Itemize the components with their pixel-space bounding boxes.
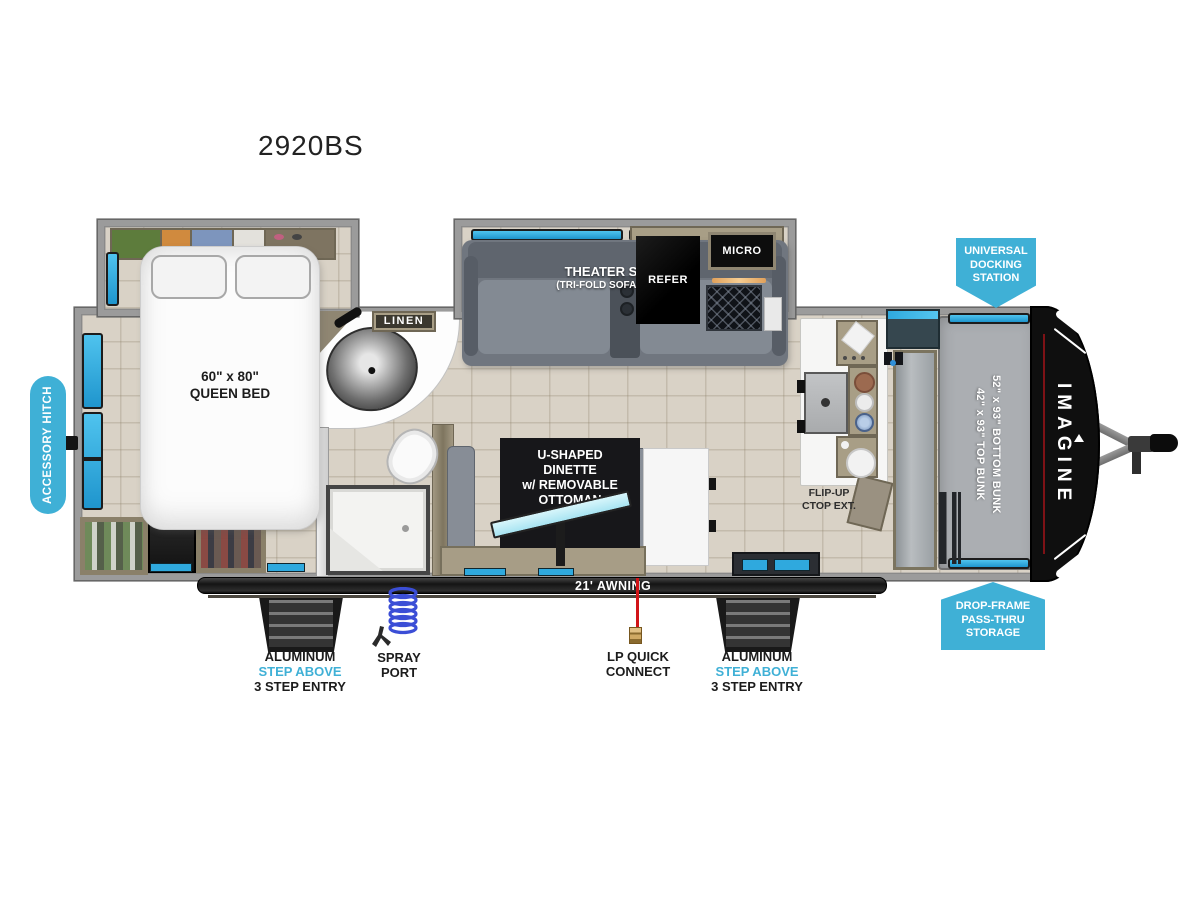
- step-label-line3: 3 STEP ENTRY: [697, 679, 817, 694]
- dinette-table-white: [643, 448, 709, 566]
- plate-white-icon: [855, 393, 874, 412]
- step-label-line1: ALUMINUM: [240, 649, 360, 664]
- linen-cabinet: LINEN: [372, 311, 436, 332]
- brand-label: IMAGINE: [1052, 330, 1074, 560]
- water-heater: [886, 309, 940, 349]
- bunk-window: [948, 313, 1030, 324]
- bed-size-label: 60" x 80": [141, 369, 319, 384]
- refrigerator: REFER: [636, 236, 700, 324]
- step-label-line3: 3 STEP ENTRY: [240, 679, 360, 694]
- wardrobe-left: [80, 517, 148, 575]
- docking-label-line2: DOCKING: [956, 259, 1036, 273]
- small-dish-icon: [841, 441, 849, 449]
- bowl-blue-icon: [855, 413, 874, 432]
- accessory-hitch-label: ACCESSORY HITCH: [30, 376, 66, 514]
- bottom-bunk-label: 52" x 93" BOTTOM BUNK: [988, 324, 1004, 564]
- storage-label-line3: STORAGE: [941, 627, 1045, 641]
- knob-icon: [843, 356, 847, 360]
- step-label-line2: STEP ABOVE: [697, 664, 817, 679]
- entry-steps-right: [711, 595, 805, 652]
- cap-red-accent: [1043, 334, 1045, 554]
- bedroom-window: [82, 412, 103, 510]
- docking-label-line3: STATION: [956, 272, 1036, 286]
- top-bunk-label: 42" x 93" TOP BUNK: [972, 324, 988, 564]
- spray-nozzle-icon: [372, 626, 394, 650]
- awning-bar: [197, 577, 887, 594]
- shower: [326, 485, 430, 575]
- storage-label-line1: DROP-FRAME: [941, 600, 1045, 614]
- storage-label-line2: PASS-THRU: [941, 614, 1045, 628]
- floor-mat: [464, 568, 506, 576]
- dinette-label-line1: U-SHAPED: [500, 448, 640, 463]
- pass-thru-storage-badge: DROP-FRAME PASS-THRU STORAGE: [941, 582, 1045, 650]
- faucet-blue-dot: [890, 360, 896, 366]
- griddle-knob-icon: [821, 398, 830, 407]
- table-hinge: [709, 478, 716, 490]
- flip-up-label-line2: CTOP EXT.: [792, 501, 866, 513]
- docking-station-badge: UNIVERSAL DOCKING STATION: [956, 238, 1036, 308]
- cabinet-handle: [797, 420, 805, 433]
- table-hinge: [709, 520, 716, 532]
- awning-label: 21' AWNING: [575, 579, 651, 593]
- window-divider: [84, 457, 101, 461]
- spray-port-label-line2: PORT: [366, 666, 432, 681]
- dinette-label-line2: DINETTE: [500, 463, 640, 478]
- cabinet-handle: [797, 380, 805, 393]
- cupholder-icon: [620, 302, 634, 316]
- counter-sink-cabinet: [836, 436, 878, 478]
- floor-plan: 2920BS ACCESSORY HITCH 60" x 80": [0, 0, 1200, 900]
- step-label-line2: STEP ABOVE: [240, 664, 360, 679]
- bed-label: QUEEN BED: [141, 386, 319, 401]
- micro-label: MICRO: [722, 245, 761, 257]
- floor-mat: [538, 568, 574, 576]
- shower-drain: [402, 525, 409, 532]
- hitch-jack-post: [1132, 450, 1141, 474]
- counter-top-cabinet: [836, 320, 878, 366]
- bedroom-window: [82, 333, 103, 409]
- step-label-right: ALUMINUM STEP ABOVE 3 STEP ENTRY: [697, 649, 817, 694]
- kitchen-side-cabinet: [764, 297, 782, 331]
- page-title: 2920BS: [258, 130, 364, 162]
- spray-port-label-line1: SPRAY: [366, 651, 432, 666]
- flip-up-label-line1: FLIP-UP: [792, 488, 866, 500]
- refer-label: REFER: [648, 274, 688, 286]
- round-sink-icon: [846, 448, 876, 478]
- lp-label-line2: CONNECT: [602, 665, 674, 680]
- bunk-label: 42" x 93" TOP BUNK 52" x 93" BOTTOM BUNK: [972, 324, 1004, 564]
- faucet-handles-icon: [895, 352, 903, 365]
- pillow: [235, 255, 311, 299]
- dinette-label-line3: w/ REMOVABLE: [500, 478, 640, 493]
- awning-rail: [208, 595, 876, 598]
- linen-label: LINEN: [376, 315, 432, 328]
- knob-icon: [852, 356, 856, 360]
- plate-brown-icon: [854, 372, 875, 393]
- cutting-board-icon: [841, 321, 875, 355]
- lp-label-line1: LP QUICK: [602, 650, 674, 665]
- entry-steps-left: [254, 595, 348, 652]
- step-label-left: ALUMINUM STEP ABOVE 3 STEP ENTRY: [240, 649, 360, 694]
- bunk-ladder-icon: [939, 492, 961, 564]
- knob-icon: [861, 356, 865, 360]
- microwave: MICRO: [708, 232, 776, 270]
- entry-mat: [267, 563, 305, 572]
- counter-dish-cabinet: [848, 366, 878, 436]
- step-label-line1: ALUMINUM: [697, 649, 817, 664]
- brand-logo-mark: [1074, 434, 1084, 442]
- dinette-table-pedestal: [556, 522, 565, 566]
- floor-mat: [150, 563, 192, 572]
- lp-line: [636, 578, 639, 630]
- water-heater-top-accent: [888, 311, 938, 319]
- entry-door-well: [732, 552, 820, 576]
- shower-door: [330, 528, 383, 571]
- pillow: [151, 255, 227, 299]
- bedroom-slide-window: [106, 252, 119, 306]
- docking-label-line1: UNIVERSAL: [956, 245, 1036, 259]
- cooktop: [706, 285, 762, 331]
- queen-bed: 60" x 80" QUEEN BED: [140, 246, 320, 530]
- pantry-closet: [893, 350, 937, 570]
- sink-drain: [368, 367, 376, 375]
- lp-connector-icon: [629, 627, 642, 644]
- range-hood-light: [712, 278, 766, 283]
- sofa-seat: [478, 280, 610, 354]
- entry-mat: [774, 559, 810, 571]
- hitch-coupler: [1150, 434, 1178, 452]
- griddle-cover: [804, 372, 848, 434]
- entry-mat: [742, 559, 768, 571]
